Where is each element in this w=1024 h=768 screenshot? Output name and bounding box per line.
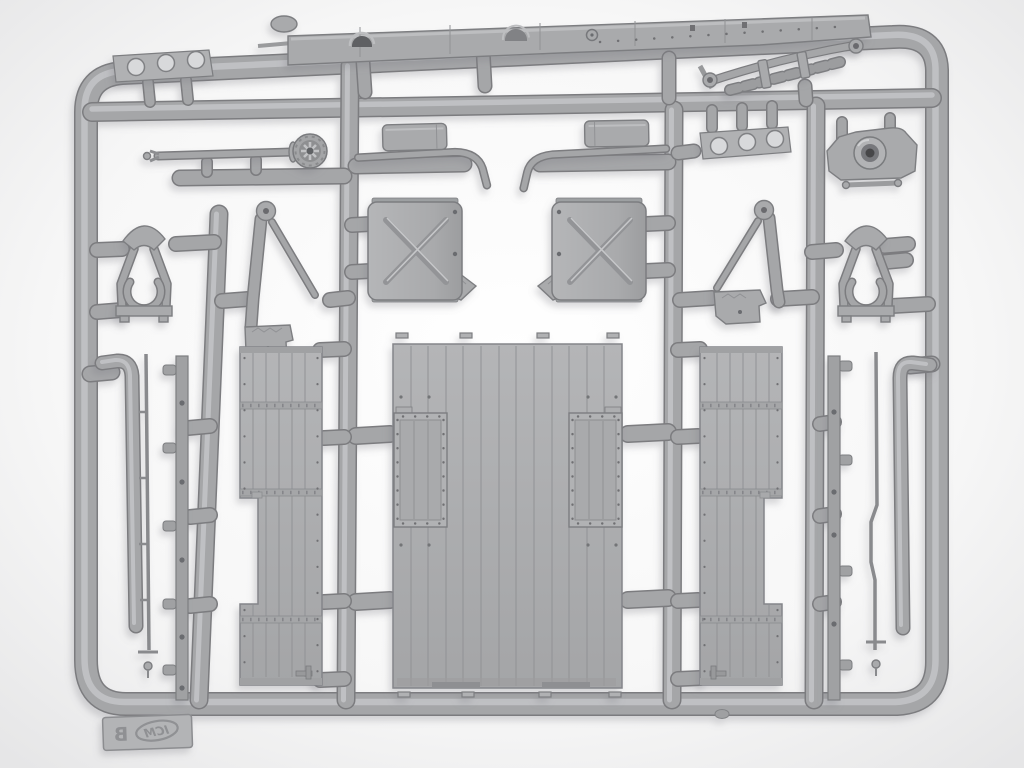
part-jerrycan-left: jerry can body with X emboss (left) xyxy=(368,198,476,302)
sprue-letter: B xyxy=(113,724,128,746)
part-jerrycan-right: jerry can body with X emboss (right) xyxy=(538,198,646,302)
injection-nub xyxy=(715,710,729,719)
sprue-photo: Photograph of a gray injection-molded po… xyxy=(0,0,1024,768)
part-hatch-panel-left: riveted hatch panel (left) xyxy=(394,407,447,527)
part-hatch-panel-right: riveted hatch panel (right) xyxy=(569,407,622,527)
part-bracket-plate-left: three-hole mounting plate (left) xyxy=(113,50,213,82)
photo-stage: Photograph of a gray injection-molded po… xyxy=(0,0,1024,768)
sprue-tag: embossed sprue identification tag B ICM xyxy=(102,714,192,750)
